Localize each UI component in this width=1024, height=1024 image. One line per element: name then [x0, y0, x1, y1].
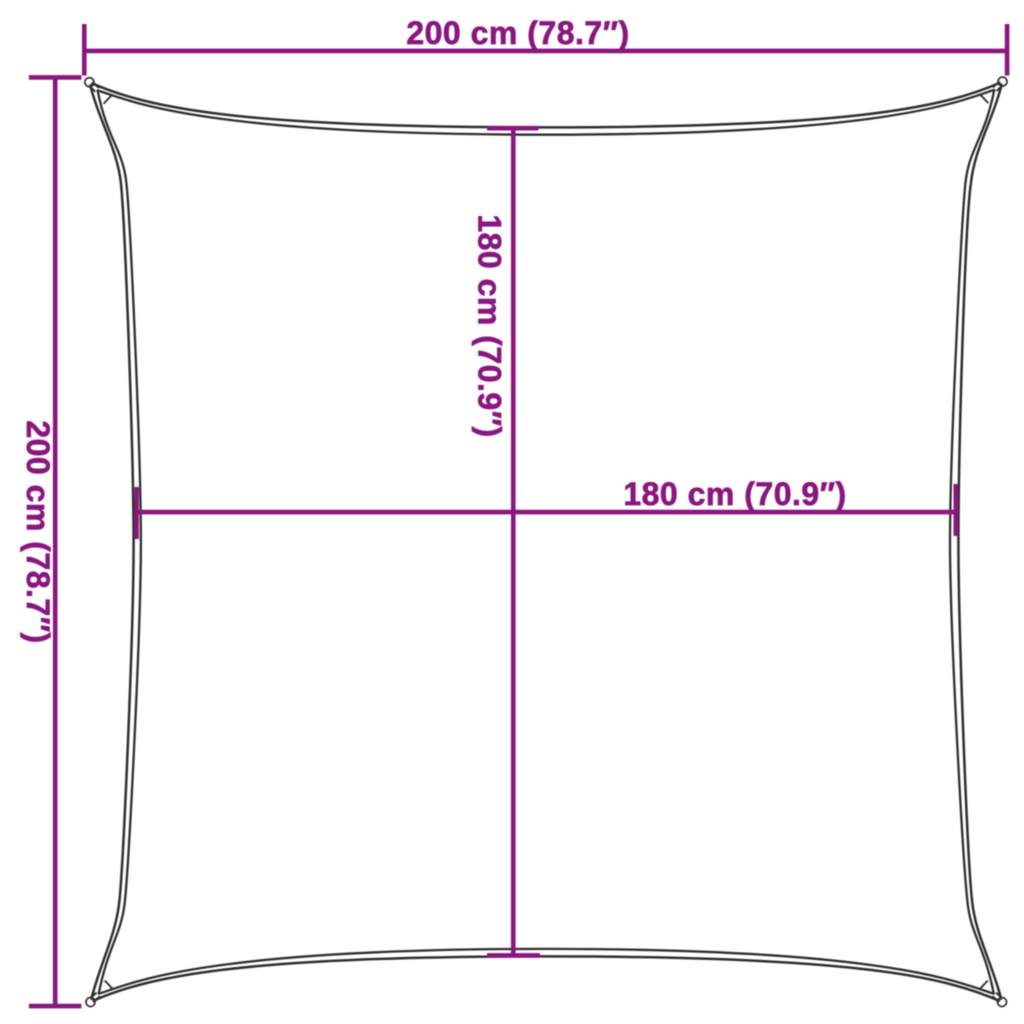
svg-text:200 cm (78.7″): 200 cm (78.7″): [20, 420, 56, 643]
svg-text:180 cm (70.9″): 180 cm (70.9″): [623, 476, 846, 512]
svg-text:180 cm (70.9″): 180 cm (70.9″): [472, 214, 508, 437]
svg-text:200 cm (78.7″): 200 cm (78.7″): [406, 15, 629, 51]
